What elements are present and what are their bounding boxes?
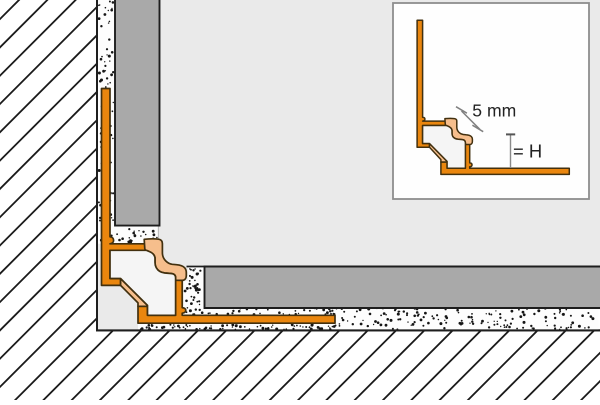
svg-text:5 mm: 5 mm xyxy=(472,100,516,120)
svg-text:= H: = H xyxy=(513,140,542,161)
